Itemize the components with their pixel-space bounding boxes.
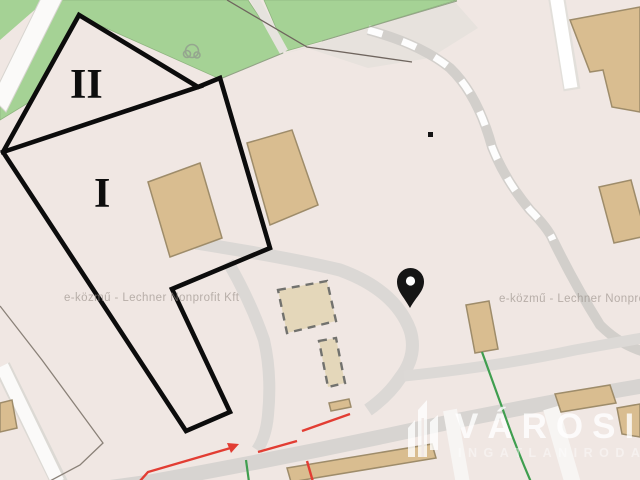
map-canvas[interactable]: II I e-közmű - Lechner Nonprofit Kft e-k…: [0, 0, 640, 480]
brand-tagline: INGATLANIRODA: [458, 446, 640, 460]
map-image: II I e-közmű - Lechner Nonprofit Kft e-k…: [0, 0, 640, 480]
watermark-right: e-közmű - Lechner Nonprofit Kft: [499, 293, 640, 305]
brand-name: VÁROSI: [455, 406, 640, 446]
watermark-left: e-közmű - Lechner Nonprofit Kft: [64, 292, 240, 304]
zone-label-II: II: [70, 62, 103, 108]
zone-label-I: I: [94, 171, 110, 217]
point-marker-dot: [428, 132, 433, 137]
